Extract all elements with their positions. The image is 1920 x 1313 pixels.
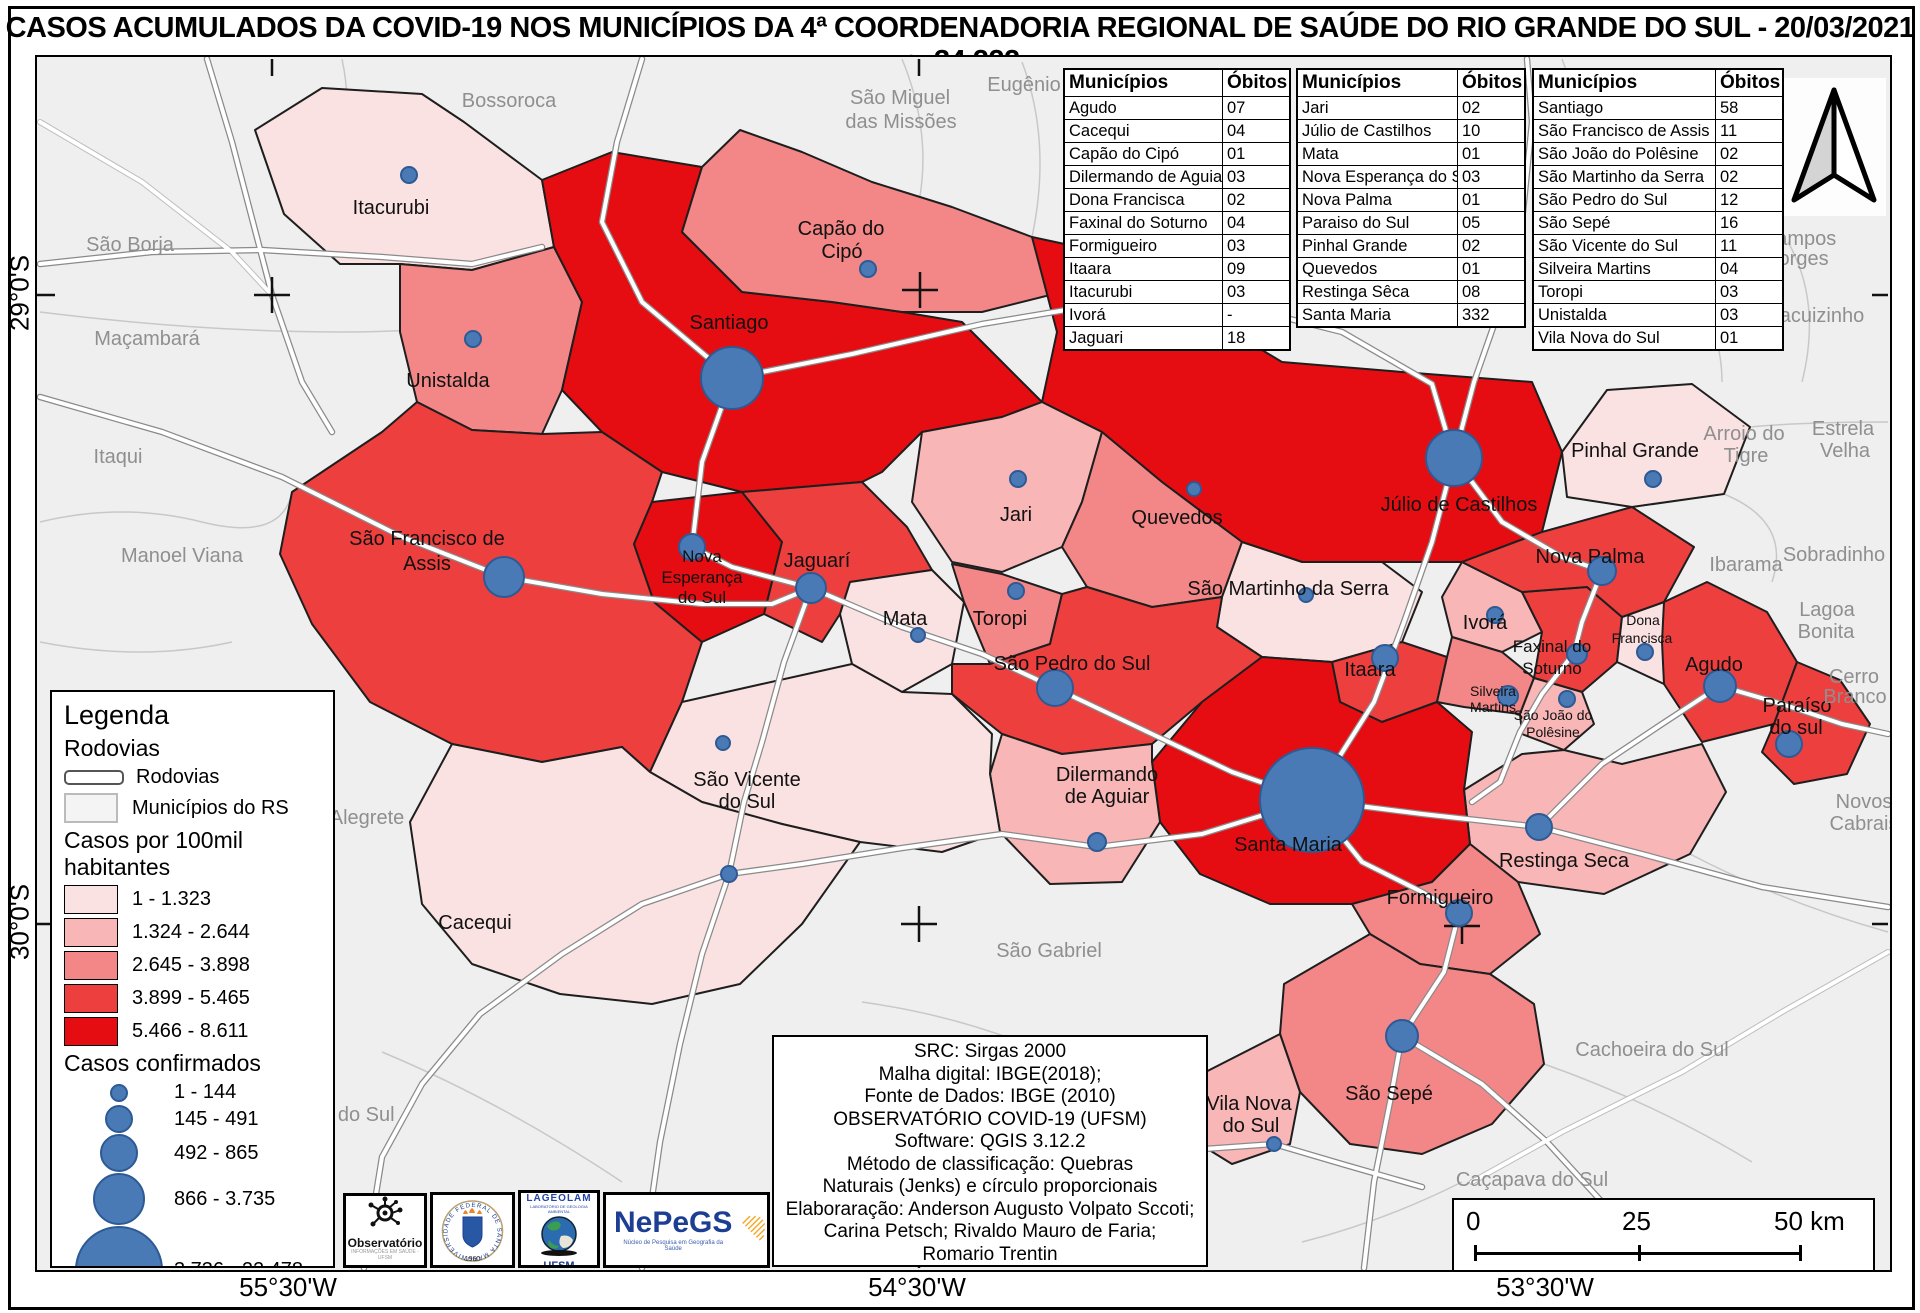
table-cell: Silveira Martins (1533, 258, 1716, 281)
case-circle-julio-de-castilhos (1426, 430, 1482, 486)
case-circle-pinhal-grande (1645, 471, 1661, 487)
circle-label: 3.736 - 22.478 (174, 1259, 303, 1269)
logo-ufsm-label: UFSM (521, 1261, 597, 1268)
svg-text:Assis: Assis (403, 553, 451, 575)
table-row: Capão do Cipó01 (1064, 143, 1290, 166)
legend-circle-class: 3.736 - 22.478 (64, 1226, 321, 1268)
table-cell: 03 (1223, 166, 1291, 189)
table-row: Toropi03 (1533, 281, 1783, 304)
lon-label-5530: 55°30'W (239, 1272, 337, 1303)
legend-section-rodovias: Rodovias (64, 735, 321, 762)
case-circle-toropi (1008, 583, 1024, 599)
svg-text:São Francisco de: São Francisco de (349, 528, 505, 550)
svg-text:São Vicente: São Vicente (693, 769, 801, 791)
scale-tick (1799, 1245, 1802, 1261)
class-label: 3.899 - 5.465 (132, 987, 250, 1010)
scale-tick (1638, 1245, 1641, 1261)
table-cell: 07 (1223, 97, 1291, 120)
svg-text:São Pedro do Sul: São Pedro do Sul (994, 653, 1151, 675)
table-cell: São João do Polêsine (1533, 143, 1716, 166)
svg-text:Arroio do: Arroio do (1703, 423, 1784, 445)
table-cell: 01 (1716, 327, 1784, 351)
lat-label-30: 30°0'S (5, 884, 36, 960)
svg-text:do Sul: do Sul (1223, 1115, 1280, 1137)
svg-text:Estrela: Estrela (1812, 418, 1875, 440)
table-cell: Santa Maria (1297, 304, 1458, 328)
north-arrow-icon (1782, 72, 1890, 222)
table-row: Jari02 (1297, 97, 1525, 120)
scale-mid: 25 (1622, 1206, 1651, 1237)
table-cell: Nova Palma (1297, 189, 1458, 212)
svg-text:Bonita: Bonita (1798, 621, 1856, 643)
svg-text:Lagoa: Lagoa (1799, 599, 1855, 621)
class-swatch (64, 984, 118, 1013)
scale-bar: 0 25 50 km (1452, 1198, 1875, 1272)
svg-text:das Missões: das Missões (845, 111, 956, 133)
svg-text:Jari: Jari (1000, 504, 1032, 526)
table-cell: Mata (1297, 143, 1458, 166)
table-cell: Unistalda (1533, 304, 1716, 327)
table-cell: - (1223, 304, 1291, 327)
credit-line: Software: QGIS 3.12.2 (774, 1131, 1206, 1154)
table-row: Itaara09 (1064, 258, 1290, 281)
legend-circle-class: 866 - 3.735 (64, 1173, 321, 1225)
table-cell: São Francisco de Assis (1533, 120, 1716, 143)
table-row: Restinga Sêca08 (1297, 281, 1525, 304)
table-cell: Formigueiro (1064, 235, 1223, 258)
svg-text:Alegrete: Alegrete (330, 807, 405, 829)
svg-text:Capão do: Capão do (798, 218, 885, 240)
table-row: Santa Maria332 (1297, 304, 1525, 328)
class-swatch (64, 951, 118, 980)
table-cell: 01 (1458, 143, 1526, 166)
table-cell: 58 (1716, 97, 1784, 120)
lon-label-5330: 53°30'W (1496, 1272, 1594, 1303)
svg-text:Maçambará: Maçambará (94, 328, 200, 350)
credit-line: Elaboraração: Anderson Augusto Volpato S… (774, 1199, 1206, 1222)
table-cell: Jaguari (1064, 327, 1223, 351)
table-cell: Ivorá (1064, 304, 1223, 327)
case-circle-itacurubi (401, 167, 417, 183)
logo-ufsm-seal: UNIVERSIDADE FEDERAL DE SANTA MARIA 1960 (430, 1192, 515, 1268)
table-cell: 03 (1223, 235, 1291, 258)
logo-nepegs-subtitle: Núcleo de Pesquisa em Geografia da Saúde (614, 1240, 732, 1252)
case-circle-santiago (701, 347, 763, 409)
road-symbol (64, 770, 124, 785)
case-circle-mata (911, 628, 925, 642)
obitos-table-3: Municípios Óbitos Santiago58São Francisc… (1532, 68, 1784, 351)
table-cell: São Pedro do Sul (1533, 189, 1716, 212)
circle-label: 145 - 491 (174, 1108, 259, 1131)
svg-text:Nova Palma: Nova Palma (1536, 546, 1646, 568)
legend-item-rodovias: Rodovias (64, 766, 321, 789)
svg-text:Agudo: Agudo (1685, 654, 1743, 676)
svg-text:Santiago: Santiago (690, 312, 769, 334)
circle-symbol (93, 1173, 145, 1225)
table-cell: 11 (1716, 235, 1784, 258)
table-cell: Pinhal Grande (1297, 235, 1458, 258)
table-row: Jaguari18 (1064, 327, 1290, 351)
svg-text:Silveira: Silveira (1470, 683, 1516, 699)
svg-text:Sobradinho: Sobradinho (1783, 544, 1885, 566)
svg-text:Cipó: Cipó (821, 241, 862, 263)
circle-symbol (110, 1084, 128, 1102)
class-swatch (64, 885, 118, 914)
svg-text:Mata: Mata (883, 608, 928, 630)
svg-text:Itaara: Itaara (1344, 659, 1396, 681)
case-circle-sao-sepe (1386, 1020, 1418, 1052)
table-cell: Cacequi (1064, 120, 1223, 143)
svg-text:Dona: Dona (1626, 612, 1660, 628)
table-row: Nova Esperança do Sul03 (1297, 166, 1525, 189)
table-cell: 01 (1458, 258, 1526, 281)
table-row: Ivorá- (1064, 304, 1290, 327)
brazil-zigzag-icon (738, 1198, 767, 1262)
case-circle-unistalda (465, 331, 481, 347)
region-dilermando-de-aguiar (990, 734, 1160, 884)
table-cell: 02 (1716, 166, 1784, 189)
svg-text:Itacurubi: Itacurubi (353, 197, 430, 219)
table-row: Vila Nova do Sul01 (1533, 327, 1783, 351)
table-cell: 332 (1458, 304, 1526, 328)
table-row: Dilermando de Aguiar03 (1064, 166, 1290, 189)
table-cell: São Martinho da Serra (1533, 166, 1716, 189)
circle-label: 866 - 3.735 (174, 1188, 275, 1211)
table-header: Óbitos (1716, 69, 1784, 97)
legend-class: 1.324 - 2.644 (64, 918, 321, 947)
circle-symbol (105, 1105, 133, 1133)
logo-lageolam-subtitle: LABORATÓRIO DE GEOLOGIA AMBIENTAL (521, 1204, 597, 1214)
svg-text:Cabrais: Cabrais (1830, 813, 1890, 835)
obitos-table-2: Municípios Óbitos Jari02Júlio de Castilh… (1296, 68, 1526, 328)
circle-symbol (100, 1134, 138, 1172)
table-row: Cacequi04 (1064, 120, 1290, 143)
credit-line: Romario Trentin (774, 1244, 1206, 1267)
class-label: 5.466 - 8.611 (132, 1020, 248, 1043)
table-cell: São Sepé (1533, 212, 1716, 235)
table-cell: Toropi (1533, 281, 1716, 304)
table-row: Unistalda03 (1533, 304, 1783, 327)
svg-text:São Miguel: São Miguel (850, 87, 950, 109)
lon-label-5430: 54°30'W (868, 1272, 966, 1303)
svg-text:Vila Nova: Vila Nova (1206, 1093, 1292, 1115)
svg-text:Soturno: Soturno (1522, 659, 1582, 678)
svg-text:1960: 1960 (465, 1256, 481, 1263)
globe-icon (537, 1214, 581, 1256)
lat-label-29: 29°0'S (5, 255, 36, 331)
table-cell: Dona Francisca (1064, 189, 1223, 212)
table-row: Itacurubi03 (1064, 281, 1290, 304)
svg-text:Francisca: Francisca (1612, 630, 1673, 646)
logo-observatorio-subtitle: INFORMAÇÕES EM SAÚDE - UFSM (346, 1249, 424, 1261)
svg-text:Velha: Velha (1820, 440, 1871, 462)
table-cell: Restinga Sêca (1297, 281, 1458, 304)
svg-text:Formigueiro: Formigueiro (1387, 887, 1494, 909)
table-cell: 05 (1458, 212, 1526, 235)
logo-nepegs-label: NePeGS (614, 1208, 732, 1238)
table-cell: São Vicente do Sul (1533, 235, 1716, 258)
table-cell: 02 (1458, 235, 1526, 258)
table-cell: Jari (1297, 97, 1458, 120)
table-row: Silveira Martins04 (1533, 258, 1783, 281)
table-cell: 03 (1716, 281, 1784, 304)
region-unistalda (400, 247, 582, 434)
case-circle-cacequi (721, 866, 737, 882)
table-cell: Capão do Cipó (1064, 143, 1223, 166)
table-row: Pinhal Grande02 (1297, 235, 1525, 258)
svg-text:Itaqui: Itaqui (94, 446, 143, 468)
legend-class: 5.466 - 8.611 (64, 1017, 321, 1046)
table-row: Formigueiro03 (1064, 235, 1290, 258)
case-circle-restinga-seca (1526, 814, 1552, 840)
credit-line: Carina Petsch; Rivaldo Mauro de Faria; (774, 1221, 1206, 1244)
case-circle-sao-joao-polesine (1559, 691, 1575, 707)
svg-text:do Sul: do Sul (678, 588, 726, 607)
svg-text:Jaguarí: Jaguarí (784, 550, 851, 572)
credit-line: SRC: Sirgas 2000 (774, 1041, 1206, 1064)
circle-label: 492 - 865 (174, 1142, 259, 1165)
table-cell: 12 (1716, 189, 1784, 212)
table-row: São João do Polêsine02 (1533, 143, 1783, 166)
svg-text:Branco: Branco (1823, 686, 1886, 708)
svg-text:Manoel Viana: Manoel Viana (121, 545, 244, 567)
table-cell: Agudo (1064, 97, 1223, 120)
legend-circle-class: 1 - 144 (64, 1081, 321, 1104)
scale-end: 50 km (1774, 1206, 1845, 1237)
table-cell: 02 (1716, 143, 1784, 166)
obitos-table-1: Municípios Óbitos Agudo07Cacequi04Capão … (1063, 68, 1291, 351)
svg-text:Novos: Novos (1836, 791, 1890, 813)
table-row: Santiago58 (1533, 97, 1783, 120)
table-header: Óbitos (1223, 69, 1291, 97)
table-header: Municípios (1064, 69, 1223, 97)
class-swatch (64, 1017, 118, 1046)
table-row: São Martinho da Serra02 (1533, 166, 1783, 189)
svg-text:Santa Maria: Santa Maria (1234, 834, 1343, 856)
table-row: Quevedos01 (1297, 258, 1525, 281)
table-cell: 08 (1458, 281, 1526, 304)
table-cell: 02 (1223, 189, 1291, 212)
table-cell: Dilermando de Aguiar (1064, 166, 1223, 189)
svg-text:Bossoroca: Bossoroca (462, 90, 557, 112)
svg-text:Caçapava do Sul: Caçapava do Sul (1456, 1169, 1608, 1191)
legend: Legenda Rodovias Rodovias Municípios do … (50, 690, 335, 1268)
table-header: Municípios (1533, 69, 1716, 97)
svg-text:Esperança: Esperança (661, 568, 743, 587)
scale-zero: 0 (1466, 1206, 1480, 1237)
case-circle-capao-do-cipo (860, 261, 876, 277)
case-circle-sao-francisco-de-assis (484, 557, 524, 597)
legend-circle-class: 492 - 865 (64, 1134, 321, 1172)
table-cell: Faxinal do Soturno (1064, 212, 1223, 235)
logo-lageolam-label: LAGEOLAM (521, 1193, 597, 1204)
municipios-symbol (64, 793, 118, 823)
svg-text:Paraíso: Paraíso (1763, 695, 1832, 717)
table-cell: 03 (1458, 166, 1526, 189)
table-cell: 09 (1223, 258, 1291, 281)
credit-line: Malha digital: IBGE(2018); (774, 1064, 1206, 1087)
table-cell: Nova Esperança do Sul (1297, 166, 1458, 189)
circle-symbol (75, 1226, 163, 1268)
svg-text:Martins: Martins (1470, 699, 1516, 715)
svg-text:do sul: do sul (1769, 717, 1822, 739)
svg-text:do Sul: do Sul (719, 791, 776, 813)
circle-label: 1 - 144 (174, 1081, 236, 1104)
table-cell: 11 (1716, 120, 1784, 143)
logo-nepegs: NePeGS Núcleo de Pesquisa em Geografia d… (603, 1192, 770, 1268)
svg-text:Cacequi: Cacequi (438, 912, 511, 934)
legend-item-municipios: Municípios do RS (64, 793, 321, 823)
table-cell: Quevedos (1297, 258, 1458, 281)
table-row: Agudo07 (1064, 97, 1290, 120)
svg-text:Júlio de Castilhos: Júlio de Castilhos (1381, 494, 1538, 516)
svg-text:São Borja: São Borja (86, 234, 175, 256)
case-circle-vila-nova (1267, 1137, 1281, 1151)
legend-circle-class: 145 - 491 (64, 1105, 321, 1133)
table-row: Faxinal do Soturno04 (1064, 212, 1290, 235)
class-swatch (64, 918, 118, 947)
legend-item-label: Rodovias (136, 766, 219, 789)
table-row: São Vicente do Sul11 (1533, 235, 1783, 258)
svg-text:São Sepé: São Sepé (1345, 1083, 1433, 1105)
table-cell: 02 (1458, 97, 1526, 120)
ufsm-seal-icon: UNIVERSIDADE FEDERAL DE SANTA MARIA 1960 (433, 1195, 512, 1265)
credit-line: OBSERVATÓRIO COVID-19 (UFSM) (774, 1109, 1206, 1132)
table-cell: 10 (1458, 120, 1526, 143)
table-cell: Paraiso do Sul (1297, 212, 1458, 235)
legend-title: Legenda (64, 700, 321, 731)
table-cell: 03 (1716, 304, 1784, 327)
credit-line: Método de classificação: Quebras (774, 1154, 1206, 1177)
legend-section-choropleth: Casos por 100mil habitantes (64, 827, 321, 881)
table-cell: Santiago (1533, 97, 1716, 120)
scale-tick (1474, 1245, 1477, 1261)
table-row: São Pedro do Sul12 (1533, 189, 1783, 212)
class-label: 1 - 1.323 (132, 888, 211, 911)
table-cell: 04 (1716, 258, 1784, 281)
case-circle-jari (1010, 471, 1026, 487)
svg-text:São Martinho da Serra: São Martinho da Serra (1187, 578, 1389, 600)
table-header: Óbitos (1458, 69, 1526, 97)
svg-text:Cerro: Cerro (1829, 666, 1879, 688)
case-circle-jaguari (796, 573, 826, 603)
logo-lageolam: LAGEOLAM LABORATÓRIO DE GEOLOGIA AMBIENT… (518, 1190, 600, 1268)
table-cell: 01 (1223, 143, 1291, 166)
table-row: Dona Francisca02 (1064, 189, 1290, 212)
table-cell: 16 (1716, 212, 1784, 235)
svg-text:São Gabriel: São Gabriel (996, 940, 1102, 962)
svg-text:Ibarama: Ibarama (1709, 554, 1783, 576)
svg-text:Restinga Seca: Restinga Seca (1499, 850, 1630, 872)
credit-line: Naturais (Jenks) e círculo proporcionais (774, 1176, 1206, 1199)
table-header: Municípios (1297, 69, 1458, 97)
table-cell: 18 (1223, 327, 1291, 351)
logo-observatorio: Observatório INFORMAÇÕES EM SAÚDE - UFSM (343, 1193, 427, 1268)
svg-text:Faxinal do: Faxinal do (1513, 637, 1591, 656)
case-circle-quevedos (1187, 482, 1201, 496)
svg-text:Dilermando: Dilermando (1056, 764, 1158, 786)
table-row: São Sepé16 (1533, 212, 1783, 235)
table-cell: 03 (1223, 281, 1291, 304)
network-icon (365, 1196, 405, 1232)
table-row: Nova Palma01 (1297, 189, 1525, 212)
svg-text:Unistalda: Unistalda (406, 370, 490, 392)
case-circle-dilermando (1088, 833, 1106, 851)
svg-text:Tigre: Tigre (1724, 445, 1769, 467)
legend-class: 2.645 - 3.898 (64, 951, 321, 980)
table-row: Paraiso do Sul05 (1297, 212, 1525, 235)
table-cell: 01 (1458, 189, 1526, 212)
case-circle-sao-pedro-do-sul (1037, 670, 1073, 706)
table-row: São Francisco de Assis11 (1533, 120, 1783, 143)
svg-text:Eugênio: Eugênio (987, 74, 1060, 96)
credit-line: Fonte de Dados: IBGE (2010) (774, 1086, 1206, 1109)
svg-text:de Aguiar: de Aguiar (1065, 786, 1150, 808)
svg-text:São João do: São João do (1514, 707, 1593, 723)
legend-section-circles: Casos confirmados (64, 1050, 321, 1077)
table-cell: Itacurubi (1064, 281, 1223, 304)
class-label: 2.645 - 3.898 (132, 954, 250, 977)
table-cell: Vila Nova do Sul (1533, 327, 1716, 351)
table-row: Mata01 (1297, 143, 1525, 166)
svg-text:Quevedos: Quevedos (1131, 507, 1222, 529)
svg-text:Cachoeira do Sul: Cachoeira do Sul (1575, 1039, 1728, 1061)
credits-box: SRC: Sirgas 2000 Malha digital: IBGE(201… (772, 1035, 1208, 1267)
class-label: 1.324 - 2.644 (132, 921, 250, 944)
table-cell: Itaara (1064, 258, 1223, 281)
svg-text:Polêsine: Polêsine (1526, 724, 1580, 740)
svg-text:Ivorá: Ivorá (1463, 612, 1508, 634)
table-cell: 04 (1223, 212, 1291, 235)
svg-text:Nova: Nova (682, 547, 722, 566)
table-cell: Júlio de Castilhos (1297, 120, 1458, 143)
svg-text:Pinhal Grande: Pinhal Grande (1571, 440, 1699, 462)
case-circle-dona-francisca (1637, 644, 1653, 660)
case-circle-sao-vicente (716, 736, 730, 750)
logo-observatorio-label: Observatório (346, 1237, 424, 1249)
legend-item-label: Municípios do RS (132, 797, 289, 820)
legend-class: 1 - 1.323 (64, 885, 321, 914)
table-cell: 04 (1223, 120, 1291, 143)
table-row: Júlio de Castilhos10 (1297, 120, 1525, 143)
legend-class: 3.899 - 5.465 (64, 984, 321, 1013)
svg-text:Toropi: Toropi (973, 608, 1027, 630)
